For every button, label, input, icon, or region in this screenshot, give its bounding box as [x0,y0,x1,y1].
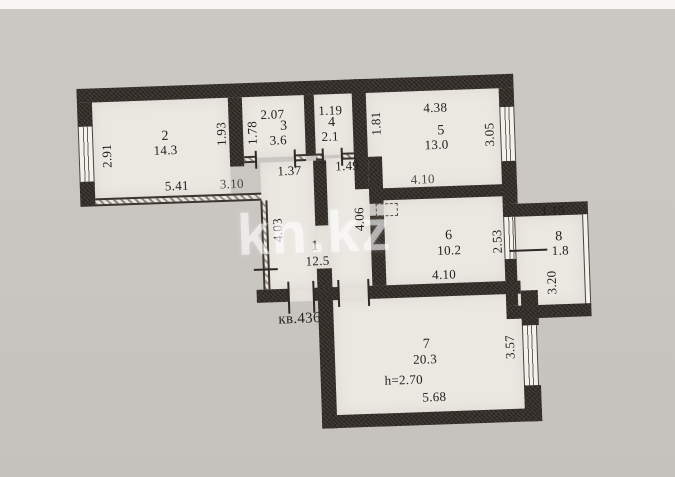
hall-dim-top-right: 1.49 [335,159,359,173]
room6-dim-bottom: 4.10 [432,267,456,281]
room6-number: 6 [445,229,453,243]
window-room7 [522,325,539,385]
window-room6-balcony [503,217,516,259]
room6-dim-right: 2.53 [490,229,504,253]
hall-dim-top-left: 1.37 [277,164,301,178]
door-gap-entrance [288,288,313,302]
room6-area: 10.2 [437,243,461,257]
room7-dim-bottom: 5.68 [422,390,446,404]
wall-right-mid [501,161,517,204]
watermark: kn.kz [236,197,393,269]
wall-right-upper [499,88,515,108]
room7-number: 7 [423,338,431,352]
room3-dim-left: 1.78 [245,121,259,145]
room2-area: 14.3 [153,143,177,157]
room8-dim-top: 1.15 [541,204,565,218]
window-room2 [78,126,95,181]
wall-left-lower [80,181,96,207]
room8-area: 1.8 [552,243,570,257]
wall-bottom-band-left [257,289,289,303]
window-room5 [499,107,516,161]
room7-dim-right: 3.57 [503,335,517,359]
apartment-number-label: кв.436 [278,311,321,327]
room2-dim-left: 2.91 [100,144,114,168]
paper-top-edge [0,0,675,9]
room5-dim-top: 4.38 [423,101,447,115]
door-gap-room7 [338,286,368,300]
floor-plan: 2 14.3 2.91 1.93 5.41 3.10 2.07 3 3.6 1.… [50,40,623,449]
room5-area: 13.0 [424,138,448,152]
room4-dim-right: 1.81 [369,111,383,135]
wall-room3-room4 [304,95,316,156]
room3-area: 3.6 [269,133,287,147]
room2-dim-bottom: 5.41 [165,179,189,193]
floor-plan-photo: 2 14.3 2.91 1.93 5.41 3.10 2.07 3 3.6 1.… [0,0,675,477]
room2-dim-bottom-right: 3.10 [220,177,244,191]
room5-dim-bottom: 4.10 [411,172,435,186]
wall-balcony-bottom [506,303,591,319]
room4-area: 2.1 [321,129,339,143]
room2-dim-right: 1.93 [214,122,228,146]
room7-ceiling-height: h=2.70 [384,373,423,387]
room5-dim-right: 3.05 [482,122,496,146]
wall-room7-right-upper [521,290,539,326]
room8-dim-left: 3.20 [545,270,559,294]
wall-left-upper [77,102,93,127]
wall-bottom-band-mid [313,287,338,301]
room7-area: 20.3 [413,352,437,366]
wall-room2-room3 [228,97,244,166]
